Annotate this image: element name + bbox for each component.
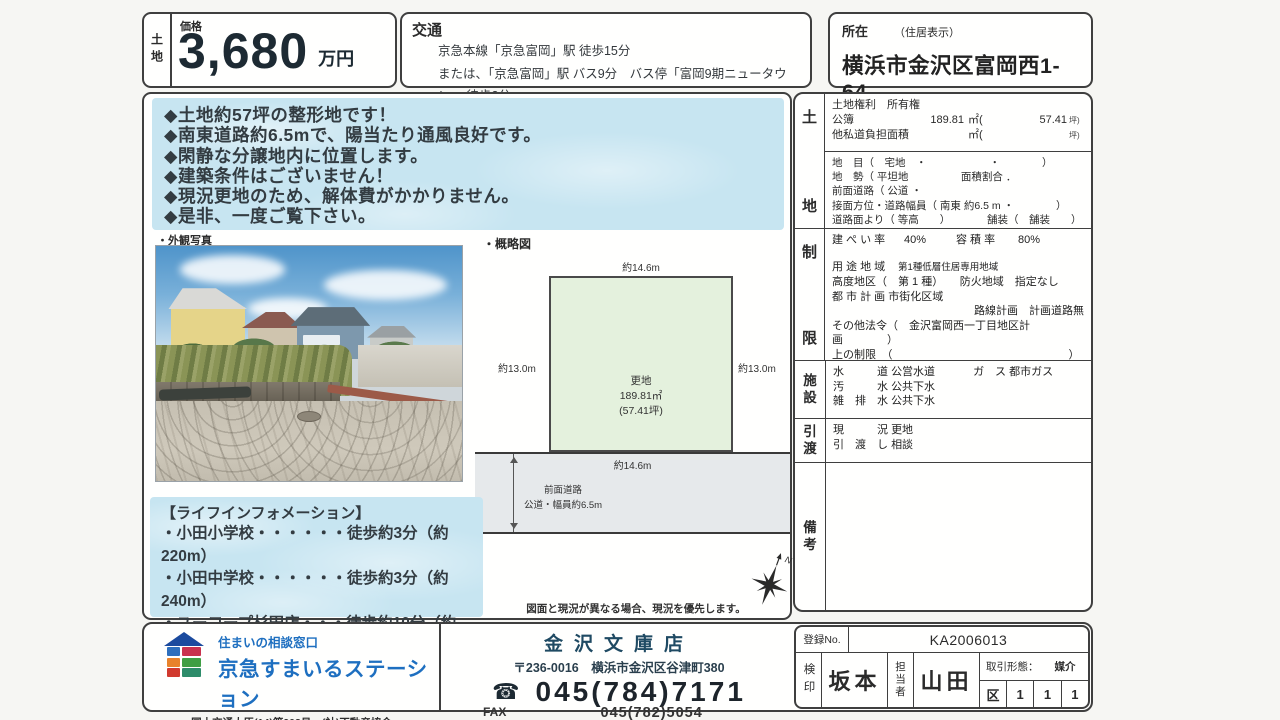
life-information: 【ライフインフォメーション】 ・小田小学校・・・・・・徒歩約3分（約220m） …	[150, 497, 483, 617]
zoning-value: 第1種低層住居専用地域	[898, 261, 998, 276]
transaction-type-row: 取引形態： 媒介	[980, 653, 1088, 681]
road-facing: 接面方位・道路幅員（ 南東 約6.5 m ・ ）	[832, 199, 1084, 213]
land-topography: 地 勢（ 平坦地 面積割合 ．	[832, 170, 1084, 184]
land-details-table: 土 地 土地権利 所有権 公簿 189.81 ㎡( 57.41 坪) 他私道負担…	[793, 92, 1093, 612]
code-cell: 1	[1007, 681, 1034, 707]
photo-manhole	[297, 411, 321, 422]
location-section: 所在 （住居表示） 横浜市金沢区富岡西1-64	[828, 12, 1093, 88]
land-category: 地 目（ 宅地 ・ ・ ）	[832, 156, 1084, 170]
gas-supply: 都市ガス	[1009, 365, 1053, 380]
license-line: 国土交通大臣(14)第902号 (社)不動産協会	[144, 715, 439, 720]
code-grid: 区 1 1 1	[980, 681, 1088, 707]
real-estate-flyer: 土地 価格 3,680 万円 交通 京急本線「京急富岡」駅 徒歩15分 または、…	[0, 0, 1280, 720]
access-section: 交通 京急本線「京急富岡」駅 徒歩15分 または、「京急富岡」駅 バス9分 バス…	[400, 12, 812, 88]
brand-tagline: 住まいの相談窓口	[218, 632, 439, 651]
transaction-type: 媒介	[1055, 659, 1076, 674]
registration-row: 登録No. KA2006013	[796, 627, 1088, 653]
drainage-row: 雑 排 水 公共下水	[833, 394, 1084, 409]
phone-number: 045(784)7171	[536, 676, 746, 708]
sewage: 公共下水	[891, 380, 935, 395]
phone-icon: ☎	[492, 679, 519, 705]
feature-item: ◆土地約57坪の整形地です！	[164, 105, 772, 125]
drainage: 公共下水	[891, 394, 935, 409]
current-state-row: 現 況 更地	[833, 423, 1084, 438]
exterior-photo	[155, 245, 463, 482]
code-cell: 1	[1062, 681, 1088, 707]
price-value: 3,680	[178, 26, 308, 76]
access-label: 交通	[412, 19, 800, 40]
fax-label: FAX	[483, 705, 506, 720]
registration-section: 登録No. KA2006013 検印 坂本 担当者 山田 取引形態： 媒介 区 …	[794, 625, 1090, 709]
city-planning: 都 市 計 画 市街化区域	[832, 290, 1084, 305]
front-road-strip: 約14.6m 前面道路 公道・幅員約6.5m	[475, 452, 790, 534]
registration-label: 登録No.	[796, 627, 849, 652]
floor-area-ratio: 80%	[1018, 233, 1084, 248]
location-label: 所在	[842, 21, 868, 40]
category-label: 土地	[144, 14, 172, 86]
code-cell: 1	[1034, 681, 1061, 707]
code-cell: 区	[980, 681, 1007, 707]
current-state: 更地	[891, 423, 913, 438]
handover-terms: 相談	[891, 438, 913, 453]
price-row: 3,680 万円	[178, 26, 354, 76]
location-sublabel: （住居表示）	[894, 24, 960, 40]
facilities-section: 施 設 水 道 公営水道 ガ ス 都市ガス 汚 水 公共下水 雑 排 水 公共下…	[795, 361, 1091, 419]
life-info-item: ・小田中学校・・・・・・徒歩約3分（約240m）	[161, 568, 472, 613]
remarks-section: 備 考	[795, 463, 1091, 610]
photo-cloud	[180, 255, 284, 283]
plot-dim-right: 約13.0m	[738, 360, 776, 375]
approval-stamp-label: 検印	[796, 653, 822, 707]
registered-area-row: 公簿 189.81 ㎡( 57.41 坪)	[832, 113, 1084, 129]
diagram-caption: ・概略図	[483, 235, 531, 252]
land-section: 土 地 土地権利 所有権 公簿 189.81 ㎡( 57.41 坪) 他私道負担…	[795, 94, 1091, 229]
land-character-block: 地 目（ 宅地 ・ ・ ） 地 勢（ 平坦地 面積割合 ． 前面道路（ 公道 ・…	[825, 152, 1091, 228]
water-supply: 公営水道	[891, 365, 935, 380]
life-info-item: ・小田小学校・・・・・・徒歩約3分（約220m）	[161, 523, 472, 568]
coverage-ratio: 40%	[904, 233, 956, 248]
approver-name: 坂本	[822, 653, 888, 707]
feature-item: ◆閑静な分譲地内に位置します。	[164, 146, 772, 166]
land-rights: 土地権利 所有権	[832, 98, 1084, 113]
remarks-content	[826, 463, 1091, 610]
photo-cloud	[324, 270, 446, 301]
store-name: 金沢文庫店	[441, 629, 797, 656]
section-label-handover: 引 渡	[795, 419, 826, 462]
restrictions-section: 制 限 建 ぺ い 率 40% 容 積 率 80% 用 途 地 域 第1種低層住…	[795, 229, 1091, 361]
sewage-row: 汚 水 公共下水	[833, 380, 1084, 395]
plot-label: 更地 189.81㎡ (57.41坪)	[551, 278, 731, 420]
staff-label: 担当者	[888, 653, 914, 707]
phone-row: ☎ 045(784)7171	[441, 676, 797, 708]
registered-area-sqm: 189.81	[922, 113, 964, 128]
section-label-restrictions: 制 限	[795, 229, 825, 360]
front-road-title: 前面道路	[503, 484, 623, 499]
feature-item: ◆現況更地のため、解体費がかかりません。	[164, 186, 772, 206]
handover-section: 引 渡 現 況 更地 引 渡 し 相談	[795, 419, 1091, 463]
fax-number: 045(782)5054	[601, 705, 703, 720]
feature-item: ◆是非、一度ご覧下さい。	[164, 206, 772, 226]
registered-area-tsubo: 57.41	[994, 113, 1067, 128]
section-label-facilities: 施 設	[795, 361, 826, 418]
plot-dim-top: 約14.6m	[549, 259, 733, 274]
other-laws: その他法令（ 金沢富岡西一丁目地区計画 ）	[832, 319, 1084, 348]
route-plan: 路線計画 計画道路無	[832, 304, 1084, 319]
plot-status: 更地	[551, 374, 731, 389]
access-line: 京急本線「京急富岡」駅 徒歩15分	[438, 40, 800, 63]
front-road-type: 前面道路（ 公道 ・	[832, 184, 1084, 198]
house-logo-icon	[162, 632, 208, 676]
life-info-title: 【ライフインフォメーション】	[161, 502, 472, 523]
road-level-paving: 道路面より（ 等高 ） 舗装（ 舗装 ）	[832, 213, 1084, 227]
plot-dim-bottom: 約14.6m	[475, 457, 790, 472]
section-label-land: 土 地	[795, 94, 825, 228]
coverage-ratio-row: 建 ぺ い 率 40% 容 積 率 80%	[832, 233, 1084, 248]
feature-list: ◆土地約57坪の整形地です！ ◆南東道路約6.5mで、陽当たり通風良好です。 ◆…	[152, 98, 784, 230]
height-district: 高度地区（ 第 1 種） 防火地域 指定なし	[832, 275, 1084, 290]
store-section: 金沢文庫店 〒236-0016 横浜市金沢区谷津町380 ☎ 045(784)7…	[441, 624, 797, 710]
handover-row: 引 渡 し 相談	[833, 438, 1084, 453]
other-laws-cont: 上の制限 （ ）	[832, 348, 1084, 363]
brand-section: 住まいの相談窓口 京急すまいるステーション 国土交通大臣(14)第902号 (社…	[144, 624, 439, 710]
diagram-note: 図面と現況が異なる場合、現況を優先します。	[505, 601, 767, 616]
private-road-row: 他私道負担面積 ㎡( 坪)	[832, 128, 1084, 144]
plot-dim-left: 約13.0m	[498, 360, 536, 375]
feature-item: ◆南東道路約6.5mで、陽当たり通風良好です。	[164, 125, 772, 145]
feature-item: ◆建築条件はございません！	[164, 166, 772, 186]
plot-area-tsubo: (57.41坪)	[551, 404, 731, 419]
land-rights-block: 土地権利 所有権 公簿 189.81 ㎡( 57.41 坪) 他私道負担面積 ㎡…	[825, 94, 1091, 152]
plot-area: 更地 189.81㎡ (57.41坪)	[549, 276, 733, 452]
stamp-row: 検印 坂本 担当者 山田 取引形態： 媒介 区 1 1 1	[796, 653, 1088, 707]
section-label-remarks: 備 考	[795, 463, 826, 610]
registration-number: KA2006013	[849, 627, 1088, 652]
footer: 住まいの相談窓口 京急すまいるステーション 国土交通大臣(14)第902号 (社…	[142, 622, 1093, 712]
plot-area-sqm: 189.81㎡	[551, 389, 731, 404]
zoning-row: 用 途 地 域 第1種低層住居専用地域	[832, 260, 1084, 276]
price-section: 土地 価格 3,680 万円	[142, 12, 397, 88]
store-address: 〒236-0016 横浜市金沢区谷津町380	[441, 657, 797, 676]
staff-name: 山田	[914, 653, 980, 707]
price-unit: 万円	[318, 45, 354, 71]
water-gas-row: 水 道 公営水道 ガ ス 都市ガス	[833, 365, 1084, 380]
front-road-width: 公道・幅員約6.5m	[503, 499, 623, 514]
brand-name: 京急すまいるステーション	[218, 652, 439, 712]
location-head: 所在 （住居表示）	[842, 21, 1079, 40]
photo-distant-road	[358, 345, 462, 387]
front-road-label: 前面道路 公道・幅員約6.5m	[503, 484, 623, 513]
